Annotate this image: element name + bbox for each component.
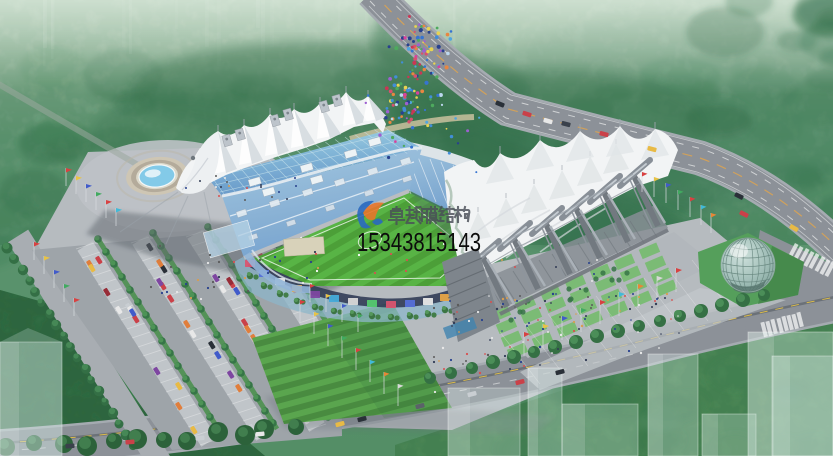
svg-text:15343815143: 15343815143 [357,227,481,257]
